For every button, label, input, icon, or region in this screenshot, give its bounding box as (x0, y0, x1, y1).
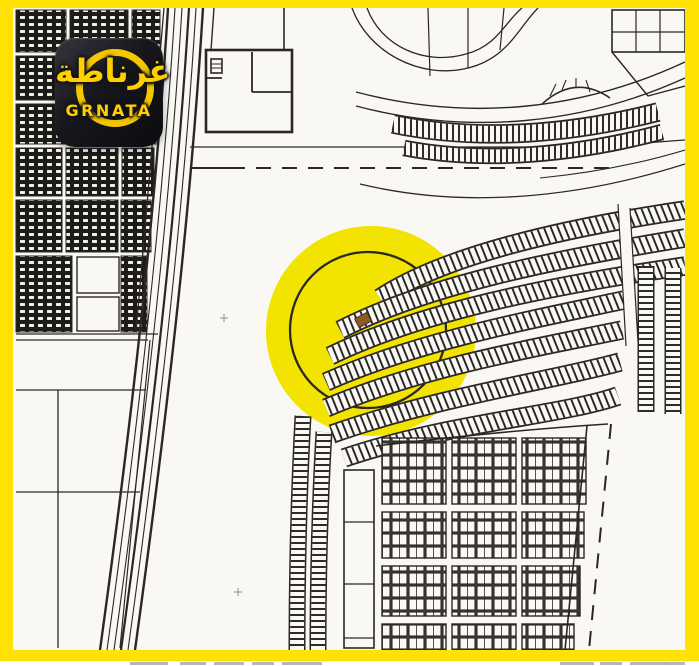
cropped-text-mark (600, 662, 622, 665)
cropped-text-mark (130, 662, 168, 665)
logo-latin-name: GRNATA (55, 101, 163, 120)
logo-arabic-name: غرناطة (55, 54, 163, 89)
cropped-text-mark (630, 662, 666, 665)
grnata-logo: غرناطة GRNATA (55, 38, 163, 147)
cropped-caption-strip (0, 661, 699, 666)
cropped-text-mark (252, 662, 274, 665)
cropped-text-mark (282, 662, 322, 665)
cropped-text-mark (665, 662, 685, 665)
cropped-text-mark (560, 662, 594, 665)
cropped-text-mark (180, 662, 206, 665)
cropped-text-mark (214, 662, 244, 665)
residential-grid (376, 424, 608, 650)
plot-map: غرناطة GRNATA (13, 8, 685, 650)
screenshot-root: غرناطة GRNATA (0, 0, 699, 666)
